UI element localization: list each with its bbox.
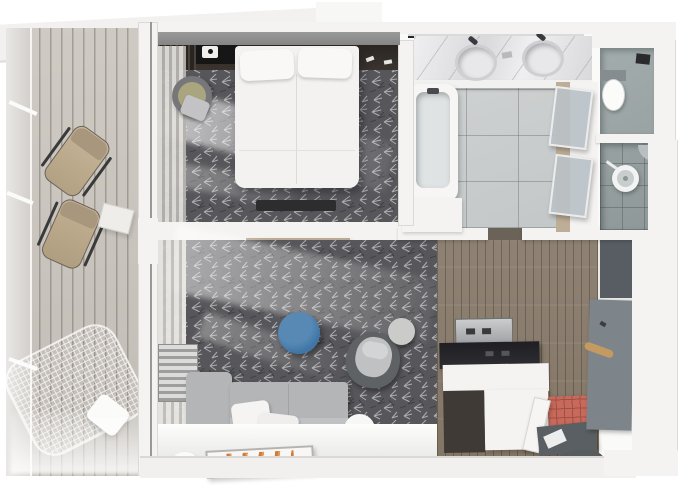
shower-tray [612,165,639,192]
sink [522,40,564,77]
wardrobe-door [586,299,634,430]
floor-plan-render [0,0,680,491]
bedroom-curtains [158,46,186,228]
window-wall [138,22,158,476]
bed-foot-bench [256,200,336,211]
toilet [602,79,625,111]
right-inner-wall [632,238,652,472]
bottom-wall [140,456,636,478]
bathtub [408,84,458,202]
bathroom-door-gap [488,226,522,240]
right-outer-wall-lower [648,140,678,472]
pouf [388,318,415,345]
balcony-sunlight [10,412,150,474]
speaker-dot-icon [208,49,213,54]
top-wall-gray-band [150,32,400,45]
glass-door [548,154,593,218]
round-ottoman [278,312,320,354]
bottom-right-corner [604,450,678,476]
bed-pillow [239,49,294,82]
bedroom-bathroom-wall [398,40,414,226]
wc-shower-wall [596,134,656,143]
bed-pillow [297,47,352,79]
glass-door [548,86,593,150]
wc-wall-box [636,53,651,64]
base-cabinet [443,390,485,453]
sink [455,44,497,81]
vanity-counter [414,36,592,83]
